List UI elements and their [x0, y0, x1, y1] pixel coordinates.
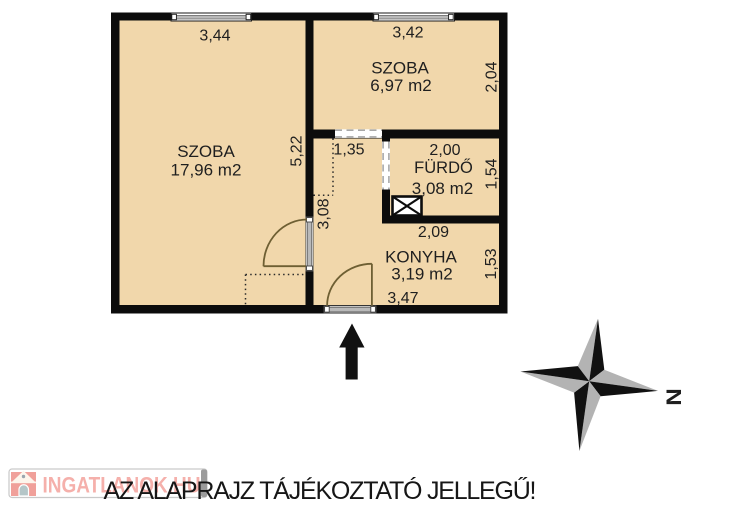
svg-text:SZOBA: SZOBA [177, 142, 235, 161]
svg-text:1,35: 1,35 [333, 142, 364, 159]
svg-text:SZOBA: SZOBA [371, 59, 429, 78]
svg-text:FÜRDŐ: FÜRDŐ [414, 158, 473, 177]
svg-text:2,09: 2,09 [418, 224, 449, 241]
svg-text:3,47: 3,47 [387, 290, 418, 307]
svg-text:2,00: 2,00 [429, 142, 460, 159]
svg-text:AZ ALAPRAJZ TÁJÉKOZTATÓ JELLEG: AZ ALAPRAJZ TÁJÉKOZTATÓ JELLEGŰ! [104, 476, 537, 505]
svg-text:3,19 m2: 3,19 m2 [391, 265, 452, 284]
svg-text:3,44: 3,44 [199, 28, 230, 45]
svg-text:6,97 m2: 6,97 m2 [370, 76, 431, 95]
svg-text:3,08 m2: 3,08 m2 [412, 179, 473, 198]
svg-text:3,42: 3,42 [392, 25, 423, 42]
svg-text:1,53: 1,53 [483, 248, 500, 279]
svg-text:1,54: 1,54 [484, 158, 501, 189]
svg-text:N: N [662, 388, 685, 406]
svg-text:3,08: 3,08 [316, 198, 333, 229]
svg-text:5,22: 5,22 [289, 135, 306, 166]
svg-text:17,96 m2: 17,96 m2 [171, 161, 242, 180]
svg-text:2,04: 2,04 [484, 61, 501, 92]
